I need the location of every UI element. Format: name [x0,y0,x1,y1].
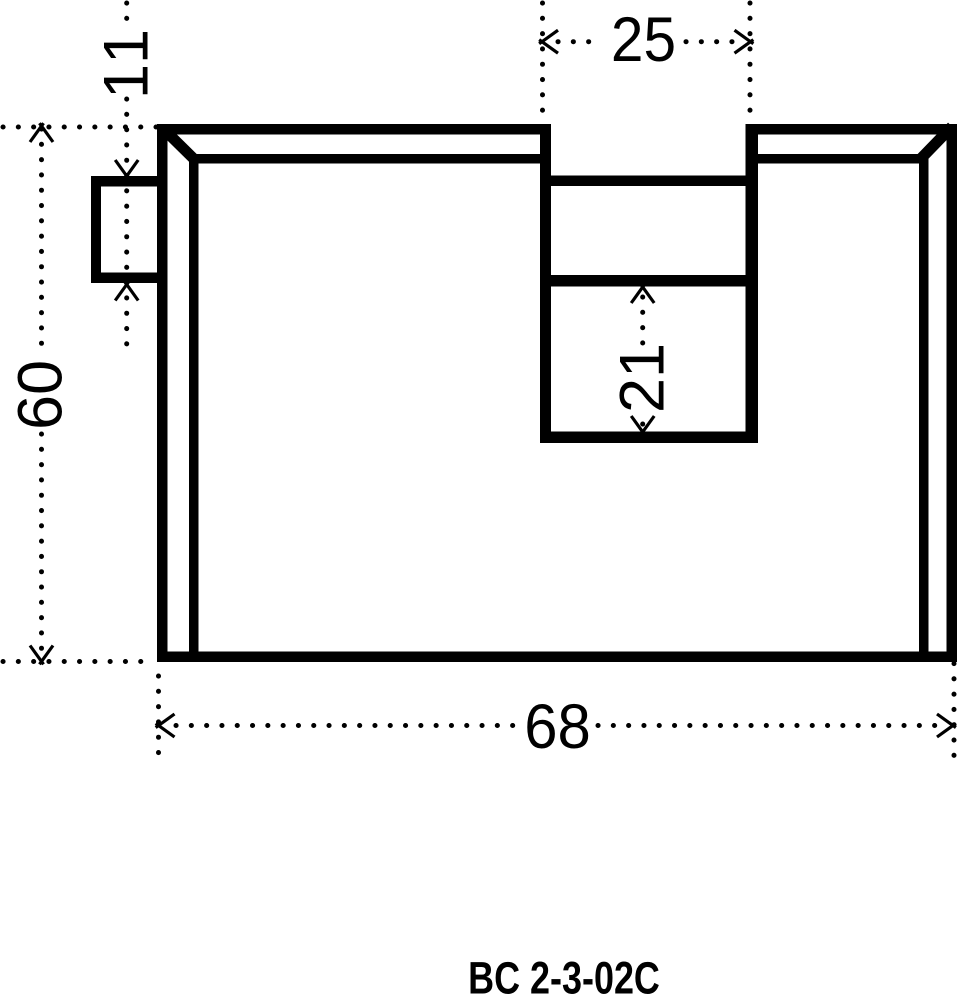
svg-text:68: 68 [524,692,591,763]
svg-text:60: 60 [6,360,76,430]
svg-text:21: 21 [608,343,678,413]
svg-text:25: 25 [611,4,676,74]
svg-text:BC 2-3-02C: BC 2-3-02C [468,952,660,1000]
svg-text:11: 11 [92,29,162,99]
